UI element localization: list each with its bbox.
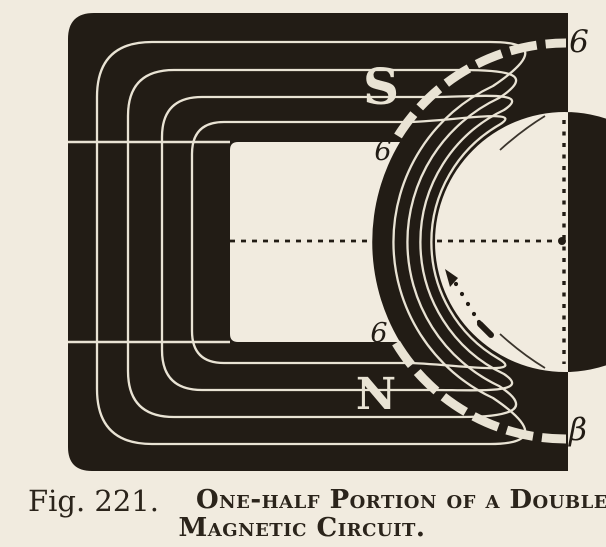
label-n-pole: N xyxy=(356,369,396,420)
label-gap-bottom: 6 xyxy=(370,318,387,349)
caption-title-line2: Magnetic Circuit. xyxy=(179,513,426,543)
magnetic-circuit-figure: S N 6 6 6 β Fig. 221. One-half Portion o… xyxy=(0,0,606,547)
label-edge-top-right: 6 xyxy=(569,24,589,60)
label-edge-bottom-right: β xyxy=(568,412,587,448)
book-page: S N 6 6 6 β Fig. 221. One-half Portion o… xyxy=(0,0,606,547)
center-point xyxy=(558,237,566,245)
label-s-pole: S xyxy=(363,57,399,116)
label-gap-top: 6 xyxy=(374,136,391,167)
caption-title-line1: One-half Portion of a Double xyxy=(196,485,606,515)
caption-figure-number: Fig. 221. xyxy=(28,484,159,518)
